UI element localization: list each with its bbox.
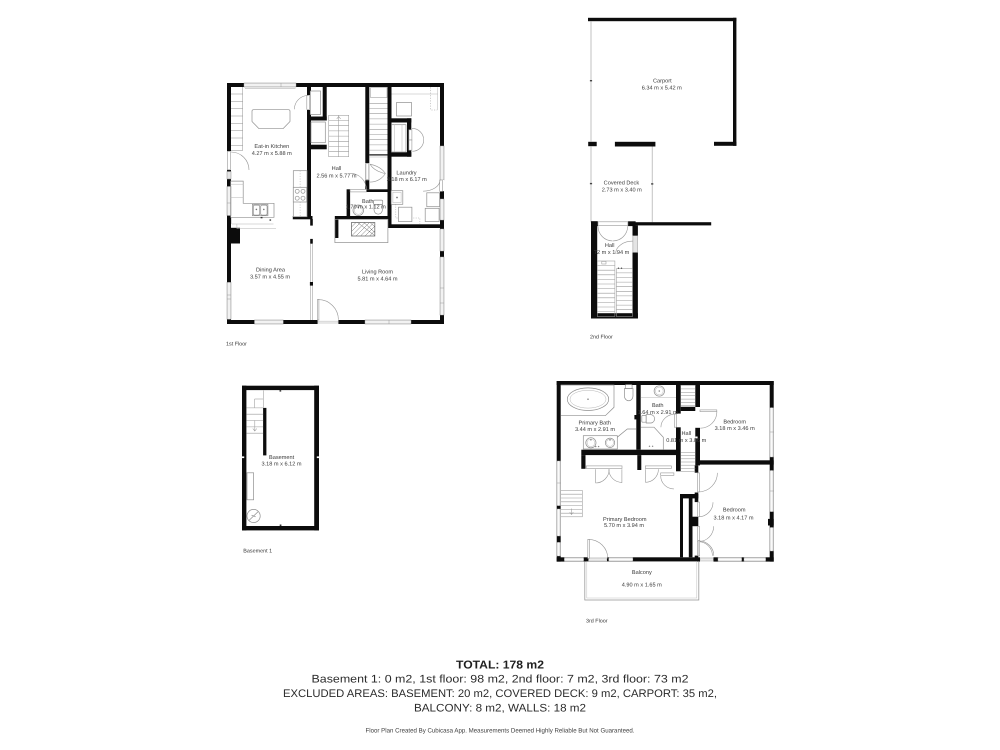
svg-text:0.81 m x 3.86 m: 0.81 m x 3.86 m bbox=[666, 438, 706, 444]
svg-text:3.44 m x 2.91 m: 3.44 m x 2.91 m bbox=[575, 427, 615, 433]
svg-text:Dining Area: Dining Area bbox=[256, 266, 286, 273]
svg-text:Primary Bedroom: Primary Bedroom bbox=[603, 516, 647, 523]
svg-text:3.18 m x 4.17 m: 3.18 m x 4.17 m bbox=[713, 515, 753, 521]
svg-text:Laundry: Laundry bbox=[396, 169, 416, 176]
svg-text:3.57 m x 4.55 m: 3.57 m x 4.55 m bbox=[250, 274, 290, 280]
svg-text:Eat-in Kitchen: Eat-in Kitchen bbox=[254, 143, 289, 150]
svg-text:4.27 m x 5.88 m: 4.27 m x 5.88 m bbox=[252, 151, 292, 157]
svg-text:TOTAL: 178 m2: TOTAL: 178 m2 bbox=[456, 659, 544, 671]
svg-text:6.34 m x 5.42 m: 6.34 m x 5.42 m bbox=[642, 85, 682, 91]
svg-text:Bedroom: Bedroom bbox=[723, 506, 746, 513]
svg-text:Hall: Hall bbox=[605, 242, 615, 249]
svg-text:Covered Deck: Covered Deck bbox=[604, 180, 640, 187]
svg-text:Bath: Bath bbox=[652, 402, 664, 409]
svg-text:Bedroom: Bedroom bbox=[723, 419, 746, 426]
svg-text:Floor Plan Created By Cubicasa: Floor Plan Created By Cubicasa App. Meas… bbox=[366, 727, 635, 734]
svg-text:Balcony: Balcony bbox=[632, 569, 652, 576]
svg-text:2nd Floor: 2nd Floor bbox=[590, 334, 613, 340]
svg-text:3.18 m x 3.46 m: 3.18 m x 3.46 m bbox=[715, 426, 755, 432]
svg-text:2.73 m x 3.40 m: 2.73 m x 3.40 m bbox=[602, 187, 642, 193]
svg-text:BALCONY: 8 m2, WALLS: 18 m2: BALCONY: 8 m2, WALLS: 18 m2 bbox=[414, 702, 586, 714]
svg-text:Basement 1: 0 m2, 1st floor: 9: Basement 1: 0 m2, 1st floor: 98 m2, 2nd … bbox=[312, 673, 689, 685]
svg-text:Carport: Carport bbox=[653, 78, 672, 84]
svg-text:Basement: Basement bbox=[269, 455, 295, 461]
svg-text:Hall: Hall bbox=[332, 165, 342, 172]
svg-text:1st Floor: 1st Floor bbox=[226, 341, 247, 347]
svg-text:3rd Floor: 3rd Floor bbox=[586, 619, 608, 625]
svg-text:5.81 m x 4.64 m: 5.81 m x 4.64 m bbox=[357, 277, 397, 283]
svg-text:Living Room: Living Room bbox=[362, 269, 393, 276]
svg-text:Primary Bath: Primary Bath bbox=[579, 419, 611, 426]
svg-text:3.18 m x 6.17 m: 3.18 m x 6.17 m bbox=[387, 177, 427, 183]
svg-text:Hall: Hall bbox=[681, 430, 691, 437]
svg-text:1.70 m x 1.12 m: 1.70 m x 1.12 m bbox=[346, 204, 386, 210]
svg-text:Basement 1: Basement 1 bbox=[243, 549, 272, 555]
svg-text:4.90 m x 1.65 m: 4.90 m x 1.65 m bbox=[622, 582, 662, 588]
svg-text:3.18 m x 6.12 m: 3.18 m x 6.12 m bbox=[261, 462, 301, 468]
svg-text:72 m x 1.94 m: 72 m x 1.94 m bbox=[594, 250, 630, 256]
svg-text:EXCLUDED AREAS: BASEMENT: 20 m: EXCLUDED AREAS: BASEMENT: 20 m2, COVERED… bbox=[283, 688, 717, 700]
svg-text:1.64 m x 2.91 m: 1.64 m x 2.91 m bbox=[638, 410, 678, 416]
svg-text:2.56 m x 5.77 m: 2.56 m x 5.77 m bbox=[316, 173, 356, 179]
svg-text:5.70 m x 3.94 m: 5.70 m x 3.94 m bbox=[604, 523, 644, 529]
